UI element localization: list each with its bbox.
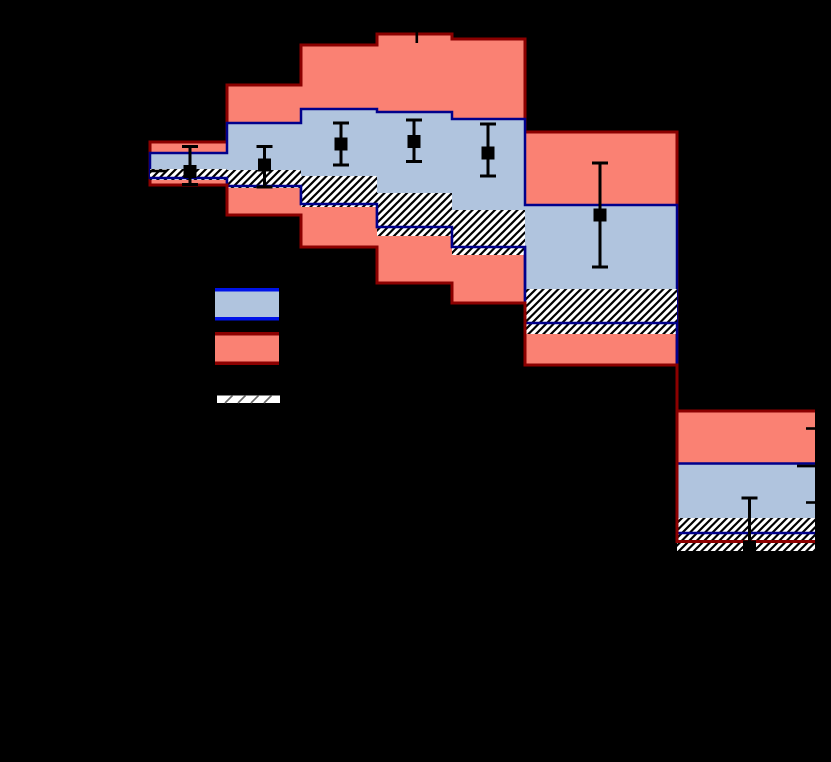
legend-swatch-fill: [215, 332, 279, 365]
legend: [215, 288, 280, 403]
square-marker: [408, 135, 421, 148]
ratio-plot-svg: [0, 0, 831, 762]
square-marker: [258, 159, 271, 172]
legend-swatch-red-band: [215, 332, 279, 365]
square-marker: [743, 541, 756, 554]
square-marker: [184, 165, 197, 178]
figure-canvas: [0, 0, 831, 762]
square-marker: [594, 209, 607, 222]
square-marker: [335, 138, 348, 151]
legend-swatch-blue-band: [215, 288, 279, 321]
legend-swatch-fill: [215, 288, 279, 321]
legend-swatch-hatch-band: [217, 396, 280, 404]
square-marker: [482, 147, 495, 160]
